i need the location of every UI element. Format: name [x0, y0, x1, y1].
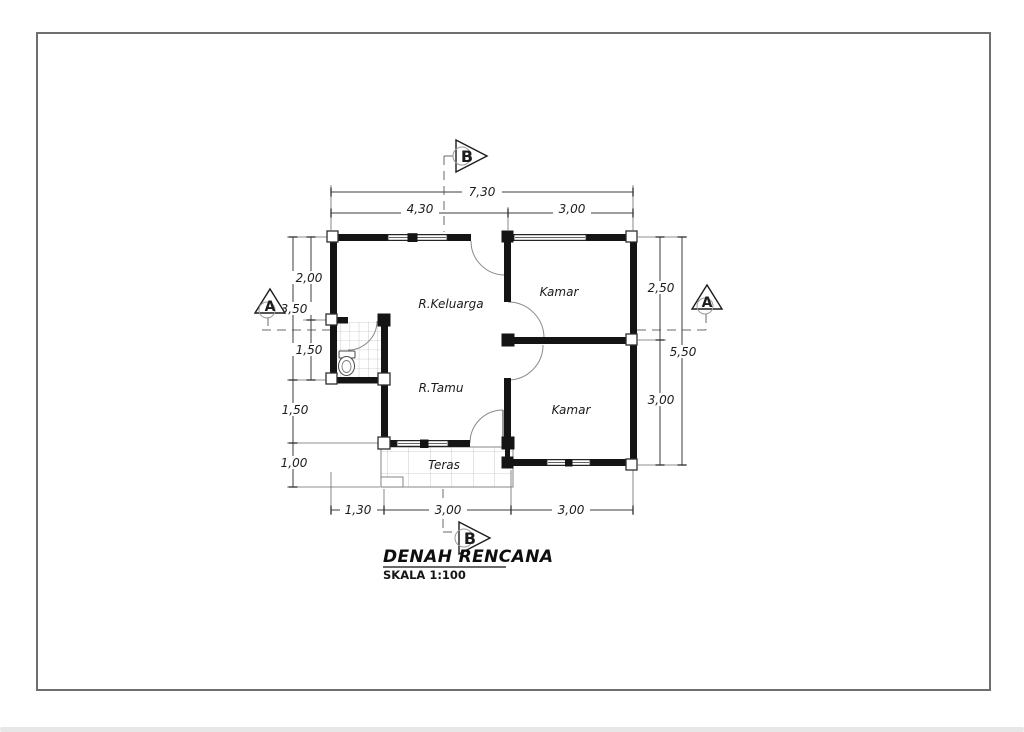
dim-left-3: 1,50	[282, 403, 309, 417]
wall-east	[630, 234, 637, 466]
door-arc-front	[470, 410, 503, 443]
dim-right-total: 5,50	[670, 345, 697, 359]
wall-interior-horizontal	[511, 337, 630, 344]
window-top-1-mullion	[408, 233, 418, 242]
teras-step	[381, 477, 403, 487]
room-label-teras: Teras	[428, 458, 460, 472]
room-label-tamu: R.Tamu	[419, 381, 464, 395]
room-label-keluarga: R.Keluarga	[418, 297, 483, 311]
dim-left-upper-total: 3,50	[281, 302, 308, 316]
window-kamar-bottom-mullion	[565, 459, 573, 467]
section-marker-b-top: B	[453, 140, 487, 172]
section-marker-a-left-label: A	[265, 299, 276, 315]
dim-bottom-1: 1,30	[345, 503, 372, 517]
section-marker-a-right: A	[692, 285, 722, 314]
wall-west	[330, 234, 337, 383]
door-arc-kamar-top	[508, 302, 544, 338]
dim-left-4: 1,00	[281, 456, 308, 470]
floor-plan-drawing: 7,30 4,30 3,00 2,00 3,50 1,50 1,50 1,00 …	[0, 0, 1024, 732]
wall-interior-vertical-b	[504, 378, 511, 440]
section-marker-a-right-label: A	[702, 295, 713, 311]
room-label-kamar-top: Kamar	[540, 285, 580, 299]
dim-right-1: 2,50	[648, 281, 675, 295]
section-marker-b-bottom-label: B	[464, 529, 476, 548]
dim-left-2: 1,50	[296, 343, 323, 357]
window-tamu-mullion	[420, 440, 429, 449]
dim-top-total: 7,30	[469, 185, 496, 199]
dim-top-left: 4,30	[407, 202, 434, 216]
door-arc-back	[471, 241, 505, 275]
dim-bottom-2: 3,00	[435, 503, 462, 517]
title-block: DENAH RENCANA SKALA 1:100	[383, 547, 553, 582]
floor-plan-sheet: 7,30 4,30 3,00 2,00 3,50 1,50 1,50 1,00 …	[0, 0, 1024, 732]
windows	[388, 233, 590, 466]
page-bottom-bar	[0, 727, 1024, 732]
wall-interior-vertical-a	[504, 241, 511, 302]
drawing-title: DENAH RENCANA	[383, 547, 553, 567]
sheet-border	[37, 33, 990, 690]
drawing-scale: SKALA 1:100	[383, 568, 466, 582]
dim-left-1: 2,00	[296, 271, 323, 285]
section-marker-b-top-label: B	[461, 147, 473, 166]
room-label-kamar-bottom: Kamar	[552, 403, 592, 417]
door-arc-kamar-bottom	[508, 345, 543, 380]
dim-top-right: 3,00	[559, 202, 586, 216]
dim-right-2: 3,00	[648, 393, 675, 407]
dim-bottom-3: 3,00	[558, 503, 585, 517]
toilet-icon	[339, 351, 356, 376]
